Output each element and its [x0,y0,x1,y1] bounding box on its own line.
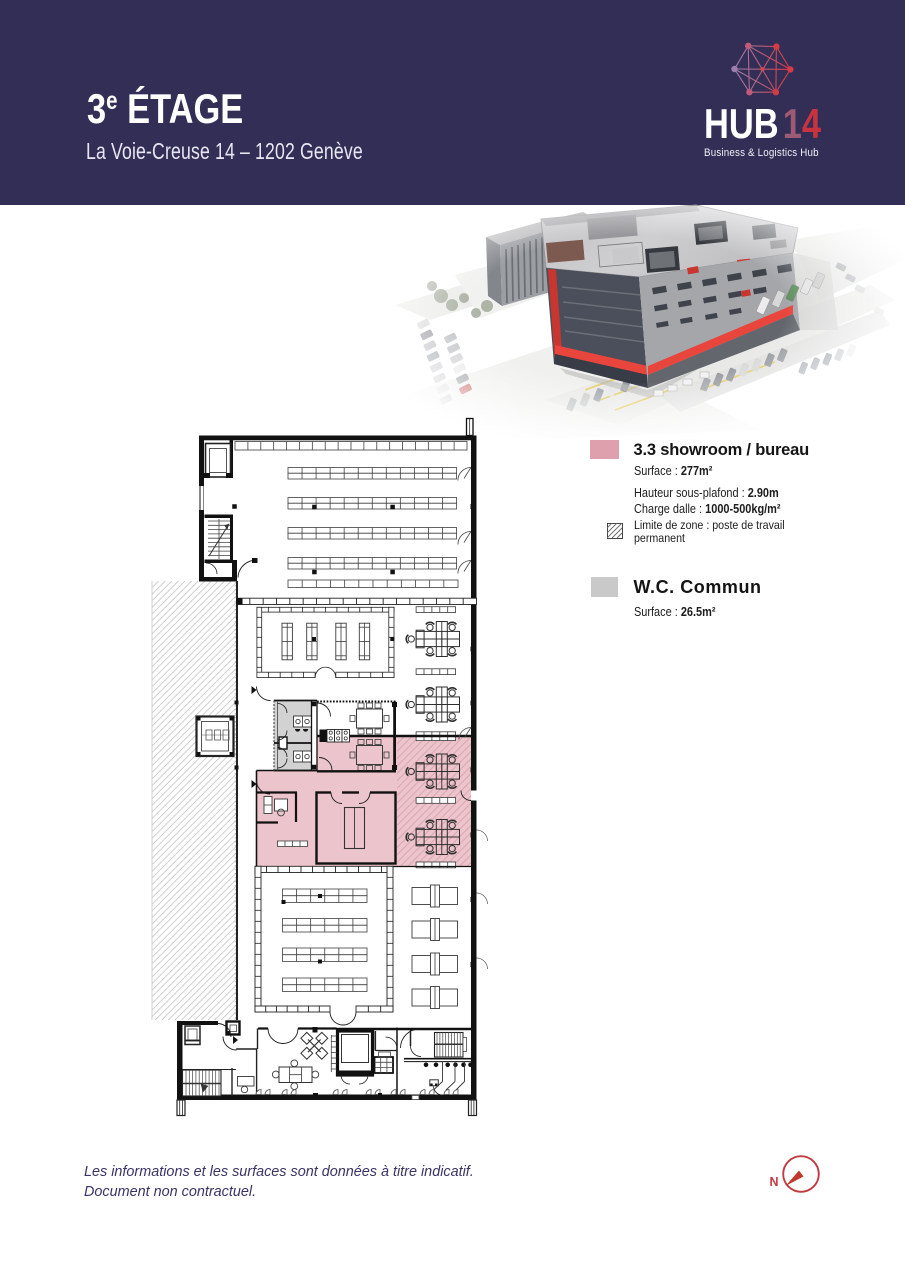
svg-text:N: N [770,1175,779,1189]
